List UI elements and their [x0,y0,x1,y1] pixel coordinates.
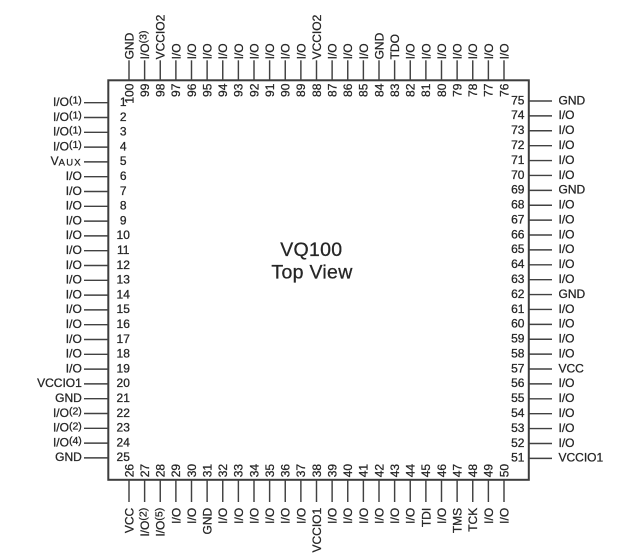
svg-text:I/O: I/O [66,287,82,301]
svg-text:48: 48 [466,464,480,478]
svg-text:I/O: I/O [559,317,575,331]
svg-text:41: 41 [357,464,371,478]
svg-text:I/O: I/O [66,361,82,375]
svg-text:7: 7 [120,184,127,198]
svg-text:35: 35 [263,464,277,478]
svg-text:78: 78 [466,83,480,97]
svg-text:80: 80 [435,83,449,97]
svg-text:I/O: I/O [185,508,199,524]
svg-text:VCCIO2: VCCIO2 [154,14,168,59]
svg-text:I/O: I/O [66,258,82,272]
svg-text:I/O: I/O [482,43,496,59]
svg-text:100: 100 [122,83,136,103]
svg-text:57: 57 [511,361,525,375]
svg-text:Top View: Top View [271,262,353,284]
svg-text:TDO: TDO [388,34,402,59]
svg-text:I/O: I/O [279,508,293,524]
svg-text:27: 27 [138,464,152,478]
svg-text:I/O: I/O [559,138,575,152]
svg-text:58: 58 [511,346,525,360]
svg-text:94: 94 [216,83,230,97]
svg-text:I/O: I/O [66,302,82,316]
svg-text:I/O: I/O [559,227,575,241]
svg-text:71: 71 [511,153,525,167]
svg-text:83: 83 [388,83,402,97]
svg-text:VCCIO2: VCCIO2 [310,14,324,59]
svg-text:I/O: I/O [435,508,449,524]
svg-text:39: 39 [325,464,339,478]
svg-text:I/O: I/O [559,332,575,346]
svg-text:66: 66 [511,227,525,241]
svg-text:I/O: I/O [294,43,308,59]
svg-text:26: 26 [122,464,136,478]
svg-text:GND: GND [55,450,82,464]
svg-text:13: 13 [117,273,131,287]
svg-text:I/O: I/O [247,508,261,524]
svg-text:I/O: I/O [559,376,575,390]
svg-text:42: 42 [372,464,386,478]
svg-text:22: 22 [117,406,131,420]
svg-text:77: 77 [482,83,496,97]
svg-text:VCC: VCC [559,361,585,375]
svg-text:I/O: I/O [559,168,575,182]
svg-text:30: 30 [185,464,199,478]
svg-text:I/O: I/O [201,43,215,59]
svg-text:75: 75 [511,93,525,107]
svg-text:I/O: I/O [326,43,340,59]
svg-text:96: 96 [185,83,199,97]
svg-text:50: 50 [497,464,511,478]
svg-text:95: 95 [200,83,214,97]
svg-text:I/O: I/O [66,213,82,227]
svg-text:84: 84 [372,83,386,97]
svg-text:49: 49 [482,464,496,478]
svg-text:16: 16 [117,317,131,331]
svg-text:VCCIO1: VCCIO1 [37,376,82,390]
svg-text:37: 37 [294,464,308,478]
svg-text:36: 36 [279,464,293,478]
svg-text:97: 97 [169,83,183,97]
svg-text:I/O: I/O [482,508,496,524]
svg-text:I/O: I/O [185,43,199,59]
svg-text:3: 3 [120,125,127,139]
svg-text:32: 32 [216,464,230,478]
svg-text:I/O: I/O [263,43,277,59]
svg-text:5: 5 [120,154,127,168]
svg-text:I/O: I/O [326,508,340,524]
svg-text:I/O: I/O [66,199,82,213]
svg-text:11: 11 [117,243,130,257]
svg-text:I/O: I/O [497,508,511,524]
svg-text:76: 76 [497,83,511,97]
svg-text:I/O: I/O [435,43,449,59]
svg-text:24: 24 [117,435,131,449]
svg-text:GND: GND [372,32,386,59]
svg-text:I/O: I/O [341,43,355,59]
svg-text:46: 46 [435,464,449,478]
svg-text:91: 91 [263,83,277,97]
svg-text:GND: GND [559,183,586,197]
svg-text:I/O: I/O [66,184,82,198]
svg-text:I/O: I/O [559,257,575,271]
svg-text:I/O: I/O [294,508,308,524]
svg-text:53: 53 [511,421,525,435]
svg-text:87: 87 [325,83,339,97]
svg-text:I/O: I/O [404,43,418,59]
svg-text:65: 65 [511,242,525,256]
svg-text:56: 56 [511,376,525,390]
svg-text:72: 72 [511,138,525,152]
svg-text:70: 70 [511,168,525,182]
svg-text:74: 74 [511,108,525,122]
svg-text:I/O: I/O [66,347,82,361]
svg-text:I/O: I/O [559,198,575,212]
svg-text:I/O: I/O [169,43,183,59]
svg-text:20: 20 [117,376,131,390]
svg-text:73: 73 [511,123,525,137]
svg-text:I/O: I/O [559,406,575,420]
svg-text:I/O: I/O [66,317,82,331]
svg-text:I/O: I/O [559,108,575,122]
svg-text:I/O: I/O [559,123,575,137]
svg-text:GND: GND [55,391,82,405]
svg-text:I/O: I/O [66,273,82,287]
svg-text:I/O: I/O [559,421,575,435]
svg-text:52: 52 [511,436,525,450]
svg-text:I/O: I/O [357,508,371,524]
svg-text:I/O: I/O [559,212,575,226]
svg-text:VCCIO1: VCCIO1 [559,451,604,465]
svg-text:21: 21 [117,391,131,405]
svg-text:29: 29 [169,464,183,478]
svg-text:55: 55 [511,391,525,405]
svg-text:79: 79 [450,83,464,97]
svg-text:I/O: I/O [66,243,82,257]
svg-text:64: 64 [511,257,525,271]
svg-text:86: 86 [341,83,355,97]
svg-text:I/O: I/O [232,43,246,59]
svg-text:I/O: I/O [559,436,575,450]
svg-text:82: 82 [404,83,418,97]
svg-text:2: 2 [120,110,127,124]
svg-text:38: 38 [310,464,324,478]
svg-text:67: 67 [511,212,525,226]
svg-text:88: 88 [310,83,324,97]
svg-text:40: 40 [341,464,355,478]
svg-text:I/O: I/O [404,508,418,524]
svg-text:54: 54 [511,406,525,420]
svg-text:89: 89 [294,83,308,97]
svg-text:85: 85 [357,83,371,97]
svg-text:VCC: VCC [122,507,136,533]
svg-text:I/O: I/O [357,43,371,59]
svg-text:9: 9 [120,213,127,227]
svg-text:I/O: I/O [372,508,386,524]
svg-text:99: 99 [138,83,152,97]
svg-text:68: 68 [511,198,525,212]
svg-text:I/O: I/O [419,43,433,59]
svg-text:I/O: I/O [559,391,575,405]
svg-text:I/O: I/O [66,228,82,242]
svg-text:GND: GND [122,32,136,59]
svg-text:92: 92 [247,83,261,97]
svg-text:I/O: I/O [388,508,402,524]
svg-text:I/O: I/O [559,346,575,360]
svg-text:VCCIO1: VCCIO1 [310,507,324,552]
svg-text:34: 34 [247,464,261,478]
svg-text:I/O: I/O [216,43,230,59]
svg-text:14: 14 [117,287,131,301]
svg-text:I/O: I/O [341,508,355,524]
svg-text:TDI: TDI [419,508,433,527]
svg-text:15: 15 [117,302,131,316]
svg-text:10: 10 [117,228,131,242]
svg-text:43: 43 [388,464,402,478]
svg-text:I/O: I/O [66,169,82,183]
svg-text:12: 12 [117,258,131,272]
svg-text:I/O: I/O [559,153,575,167]
svg-text:63: 63 [511,272,525,286]
svg-text:I/O: I/O [497,43,511,59]
svg-text:8: 8 [120,199,127,213]
svg-text:GND: GND [559,287,586,301]
svg-text:61: 61 [511,302,525,316]
svg-text:I/O: I/O [451,43,465,59]
svg-text:90: 90 [279,83,293,97]
svg-text:98: 98 [154,83,168,97]
svg-text:I/O: I/O [466,43,480,59]
svg-text:31: 31 [200,464,214,478]
svg-text:I/O: I/O [559,272,575,286]
svg-text:I/O: I/O [559,302,575,316]
svg-text:GND: GND [201,507,215,534]
svg-text:I/O: I/O [247,43,261,59]
svg-text:I/O: I/O [263,508,277,524]
svg-text:18: 18 [117,347,131,361]
svg-text:GND: GND [559,93,586,107]
svg-text:19: 19 [117,361,131,375]
svg-text:81: 81 [419,83,433,97]
svg-text:4: 4 [120,139,127,153]
svg-text:I/O: I/O [279,43,293,59]
svg-text:69: 69 [511,183,525,197]
svg-text:23: 23 [117,421,131,435]
svg-text:28: 28 [154,464,168,478]
svg-text:59: 59 [511,332,525,346]
svg-text:I/O: I/O [232,508,246,524]
svg-text:93: 93 [232,83,246,97]
svg-text:VQ100: VQ100 [280,239,342,261]
svg-text:33: 33 [232,464,246,478]
svg-text:60: 60 [511,317,525,331]
svg-text:I/O: I/O [169,508,183,524]
svg-text:TMS: TMS [451,508,465,533]
svg-text:I/O: I/O [559,242,575,256]
svg-text:45: 45 [419,464,433,478]
svg-text:6: 6 [120,169,127,183]
svg-text:I/O: I/O [216,508,230,524]
svg-text:44: 44 [404,464,418,478]
svg-text:17: 17 [117,332,131,346]
svg-text:I/O: I/O [66,332,82,346]
svg-text:62: 62 [511,287,525,301]
svg-text:TCK: TCK [466,508,480,532]
svg-text:25: 25 [117,450,131,464]
svg-text:47: 47 [450,464,464,478]
svg-text:51: 51 [511,451,525,465]
